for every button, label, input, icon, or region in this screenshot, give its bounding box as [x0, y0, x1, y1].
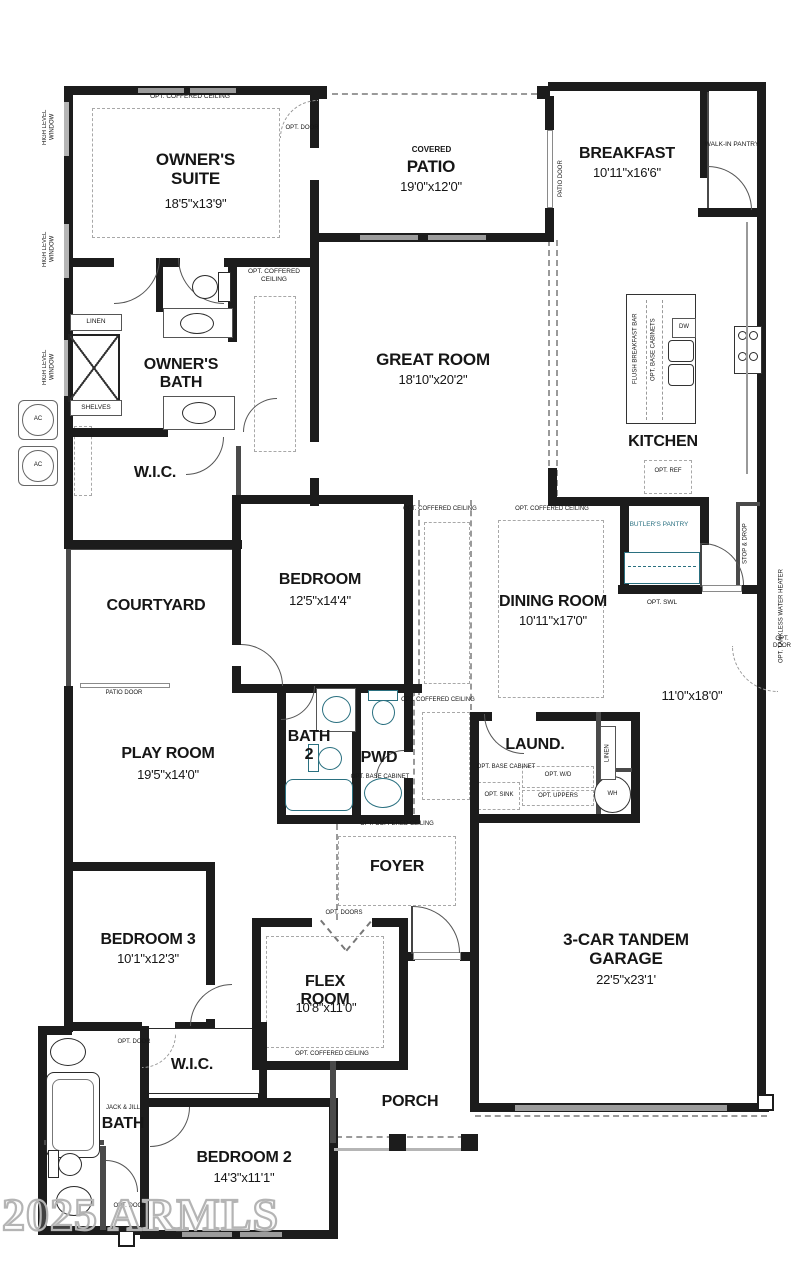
door-arc — [281, 686, 315, 720]
wall — [206, 862, 215, 985]
wall — [536, 712, 633, 721]
opt-swl-label: OPT. SWL — [640, 592, 684, 614]
room-label-bath2: BATH 2 — [283, 722, 335, 770]
opt-coffered-ceiling-label: OPT. COFFERED CEILING — [400, 696, 476, 705]
room-dims-garage: 22'5"x23'1' — [556, 972, 696, 988]
window-strip — [360, 235, 418, 240]
opt-coffered-ceiling-label: OPT. COFFERED CEILING — [143, 92, 237, 102]
room-sub-patio: COVERED — [394, 145, 469, 156]
dishwasher-icon: DW — [672, 318, 696, 338]
wall — [64, 862, 215, 871]
ceiling-zone — [424, 522, 470, 684]
wall — [64, 540, 242, 549]
room-dims-breakfast: 10'11"x16'6" — [584, 165, 670, 181]
room-dims-owners-suite: 18'5"x13'9" — [133, 196, 258, 212]
room-label-butlers-pantry: BUTLER'S PANTRY — [626, 514, 692, 536]
garage-door-dashed — [475, 1115, 767, 1117]
flush-breakfast-bar-label: FLUSH BREAKFAST BAR — [630, 298, 642, 400]
porch-post — [389, 1134, 406, 1151]
wall — [140, 1098, 338, 1107]
ceiling-zone — [422, 712, 470, 800]
sink-icon — [50, 1038, 86, 1066]
garage-entry-door-strip — [702, 585, 742, 592]
opt-tankless-water-heater-label: OPT. TANKLESS WATER HEATER — [768, 568, 796, 664]
sink-icon — [182, 402, 216, 424]
opt-base-cabinet-label: OPT. BASE CABINET — [350, 768, 410, 788]
room-dims-great-room: 18'10"x20'2" — [377, 372, 489, 388]
porch-wall — [330, 1061, 336, 1143]
wall — [631, 712, 640, 814]
courtyard-wall — [66, 546, 71, 686]
front-door-strip — [413, 952, 461, 960]
opening-dashed — [413, 690, 415, 814]
kitchen-sink-icon — [668, 364, 694, 386]
porch-post — [461, 1134, 478, 1151]
toilet-bowl-icon — [58, 1153, 82, 1176]
opt-coffered-ceiling-label: OPT. COFFERED CEILING — [356, 820, 438, 829]
wall — [404, 495, 413, 697]
room-label-bedroom: BEDROOM — [268, 570, 372, 590]
door-arc — [190, 984, 232, 1026]
room-label-wic2: W.I.C. — [154, 1056, 230, 1074]
room-label-play-room: PLAY ROOM — [114, 744, 222, 764]
tub-inner — [52, 1079, 94, 1151]
door-arc — [241, 644, 283, 686]
room-label-walk-in-pantry: WALK-IN PANTRY — [704, 134, 760, 156]
ac-label: AC — [18, 446, 58, 486]
high-level-window-label: HIGH LEVEL WINDOW — [42, 96, 57, 158]
room-dims-bedroom3: 10'1"x12'3" — [98, 951, 198, 967]
opening-dashed — [336, 824, 338, 920]
tub-icon — [285, 779, 353, 811]
room-label-pwd: PWD — [352, 748, 406, 768]
wall — [545, 96, 554, 130]
toilet-bowl-icon — [192, 275, 218, 299]
room-label-porch: PORCH — [372, 1092, 448, 1112]
opening-dashed — [556, 240, 558, 496]
door-arc — [708, 166, 752, 210]
room-label-breakfast: BREAKFAST — [578, 144, 676, 164]
patio-door-label: PATIO DOOR — [556, 144, 567, 214]
stop-and-drop-label: STOP & DROP — [738, 504, 754, 584]
room-label-flex: FLEX ROOM — [283, 982, 367, 1000]
room-dims-tandem: 11'0"x18'0" — [646, 688, 738, 704]
wall — [64, 440, 73, 546]
opt-uppers-label: OPT. UPPERS — [524, 790, 592, 804]
wall — [310, 242, 319, 442]
wall — [64, 686, 73, 1032]
opt-sink-label: OPT. SINK — [480, 784, 518, 808]
wall — [399, 918, 408, 1070]
pillar — [757, 1094, 774, 1111]
linen-label: LINEN — [70, 314, 122, 331]
kitchen-sink-icon — [668, 340, 694, 362]
room-label-bedroom2: BEDROOM 2 — [188, 1148, 300, 1168]
window-strip — [428, 235, 486, 240]
room-label-garage: 3-CAR TANDEM GARAGE — [538, 928, 714, 970]
room-label-owners-suite: OWNER'S SUITE — [138, 144, 253, 194]
room-label-bedroom3: BEDROOM 3 — [92, 930, 204, 950]
room-label-kitchen: KITCHEN — [624, 432, 702, 452]
room-label-foyer: FOYER — [360, 856, 434, 878]
door-arc — [243, 398, 277, 432]
room-dims-dining: 10'11"x17'0" — [502, 613, 604, 629]
door-arc — [114, 258, 160, 304]
island-dashed — [662, 300, 663, 420]
wall — [64, 258, 114, 267]
patio-door-strip — [547, 130, 553, 208]
burner-icon — [749, 352, 758, 361]
high-level-window-label: HIGH LEVEL WINDOW — [42, 336, 57, 398]
room-dims-play-room: 19'5"x14'0" — [117, 767, 219, 783]
island-dashed — [646, 300, 647, 420]
opt-doors-label: OPT. DOORS — [313, 909, 375, 918]
room-label-jack-jill-bath: BATH — [94, 1114, 152, 1134]
room-label-wic: W.I.C. — [116, 464, 194, 482]
wall — [545, 208, 554, 242]
wall — [460, 952, 476, 961]
wall — [64, 428, 168, 437]
opening-dashed — [470, 500, 472, 710]
room-label-laundry: LAUND. — [493, 734, 577, 756]
opt-ref-label: OPT. REF — [644, 466, 692, 478]
burner-icon — [749, 331, 758, 340]
wall — [548, 82, 708, 91]
wall — [470, 814, 640, 823]
armls-watermark: 2025 ARMLS — [2, 1188, 279, 1241]
wall — [232, 495, 413, 504]
door-leaf — [411, 906, 413, 954]
butler-counter — [624, 552, 700, 584]
wall — [700, 497, 709, 545]
patio-open-edge — [332, 93, 537, 95]
window-strip — [64, 224, 69, 278]
opt-base-cabinets-label: OPT. BASE CABINETS — [648, 300, 660, 400]
wall — [232, 495, 241, 645]
wall — [757, 480, 766, 1112]
opt-base-cabinet-label: OPT. BASE CABINET — [476, 758, 536, 778]
ac-label: AC — [18, 400, 58, 440]
room-dims-flex: 10'8"x11'0" — [286, 1001, 366, 1016]
toilet-bowl-icon — [372, 700, 395, 725]
wall — [64, 1022, 142, 1031]
wall — [252, 918, 261, 1070]
floor-plan: DW WH AC AC OWNER'S SUITE 18'5"x13'9" CO… — [0, 0, 800, 1268]
linen-label: LINEN — [600, 726, 616, 780]
shelves-label: SHELVES — [70, 400, 122, 416]
room-label-patio: PATIO — [386, 156, 476, 178]
opt-door-label: OPT. DOOR — [116, 1034, 152, 1052]
door-leaf — [700, 543, 702, 587]
patio-door-label: PATIO DOOR — [96, 690, 152, 698]
room-label-dining: DINING ROOM — [494, 592, 612, 612]
opt-coffered-ceiling-label: OPT. COFFERED CEILING — [242, 266, 306, 286]
toilet-tank-icon — [218, 272, 231, 302]
high-level-window-label: HIGH LEVEL WINDOW — [42, 218, 57, 280]
room-label-owners-bath: OWNER'S BATH — [132, 350, 230, 398]
opt-coffered-ceiling-label: OPT. COFFERED CEILING — [512, 505, 592, 514]
sink-icon — [322, 696, 351, 723]
front-door-arc — [413, 906, 460, 953]
room-dims-bedroom2: 14'3"x11'1" — [192, 1170, 296, 1186]
opt-coffered-ceiling-label: OPT. COFFERED CEILING — [290, 1050, 374, 1059]
counter-line — [746, 222, 748, 474]
room-label-courtyard: COURTYARD — [100, 596, 212, 616]
opening-dashed — [418, 500, 420, 695]
room-dims-patio: 19'0"x12'0" — [383, 179, 479, 195]
patio-door-strip — [80, 683, 170, 688]
room-dims-bedroom: 12'5"x14'4" — [264, 593, 376, 609]
water-heater-label: WH — [594, 776, 631, 813]
opt-coffered-ceiling-label: OPT. COFFERED CEILING — [402, 505, 478, 514]
opt-door-label: OPT. DOOR — [284, 120, 320, 138]
wall — [742, 585, 766, 594]
butler-counter-dashed — [628, 566, 696, 567]
garage-door-strip — [515, 1105, 727, 1111]
room-sub-jack-jill: JACK & JILL — [94, 1104, 152, 1114]
opening-dashed — [548, 240, 550, 496]
sink-icon — [180, 313, 214, 334]
shower-icon — [68, 334, 120, 402]
room-label-great-room: GREAT ROOM — [370, 350, 496, 370]
window-strip — [64, 102, 69, 156]
door-arc — [150, 1107, 190, 1147]
wall — [252, 918, 312, 927]
